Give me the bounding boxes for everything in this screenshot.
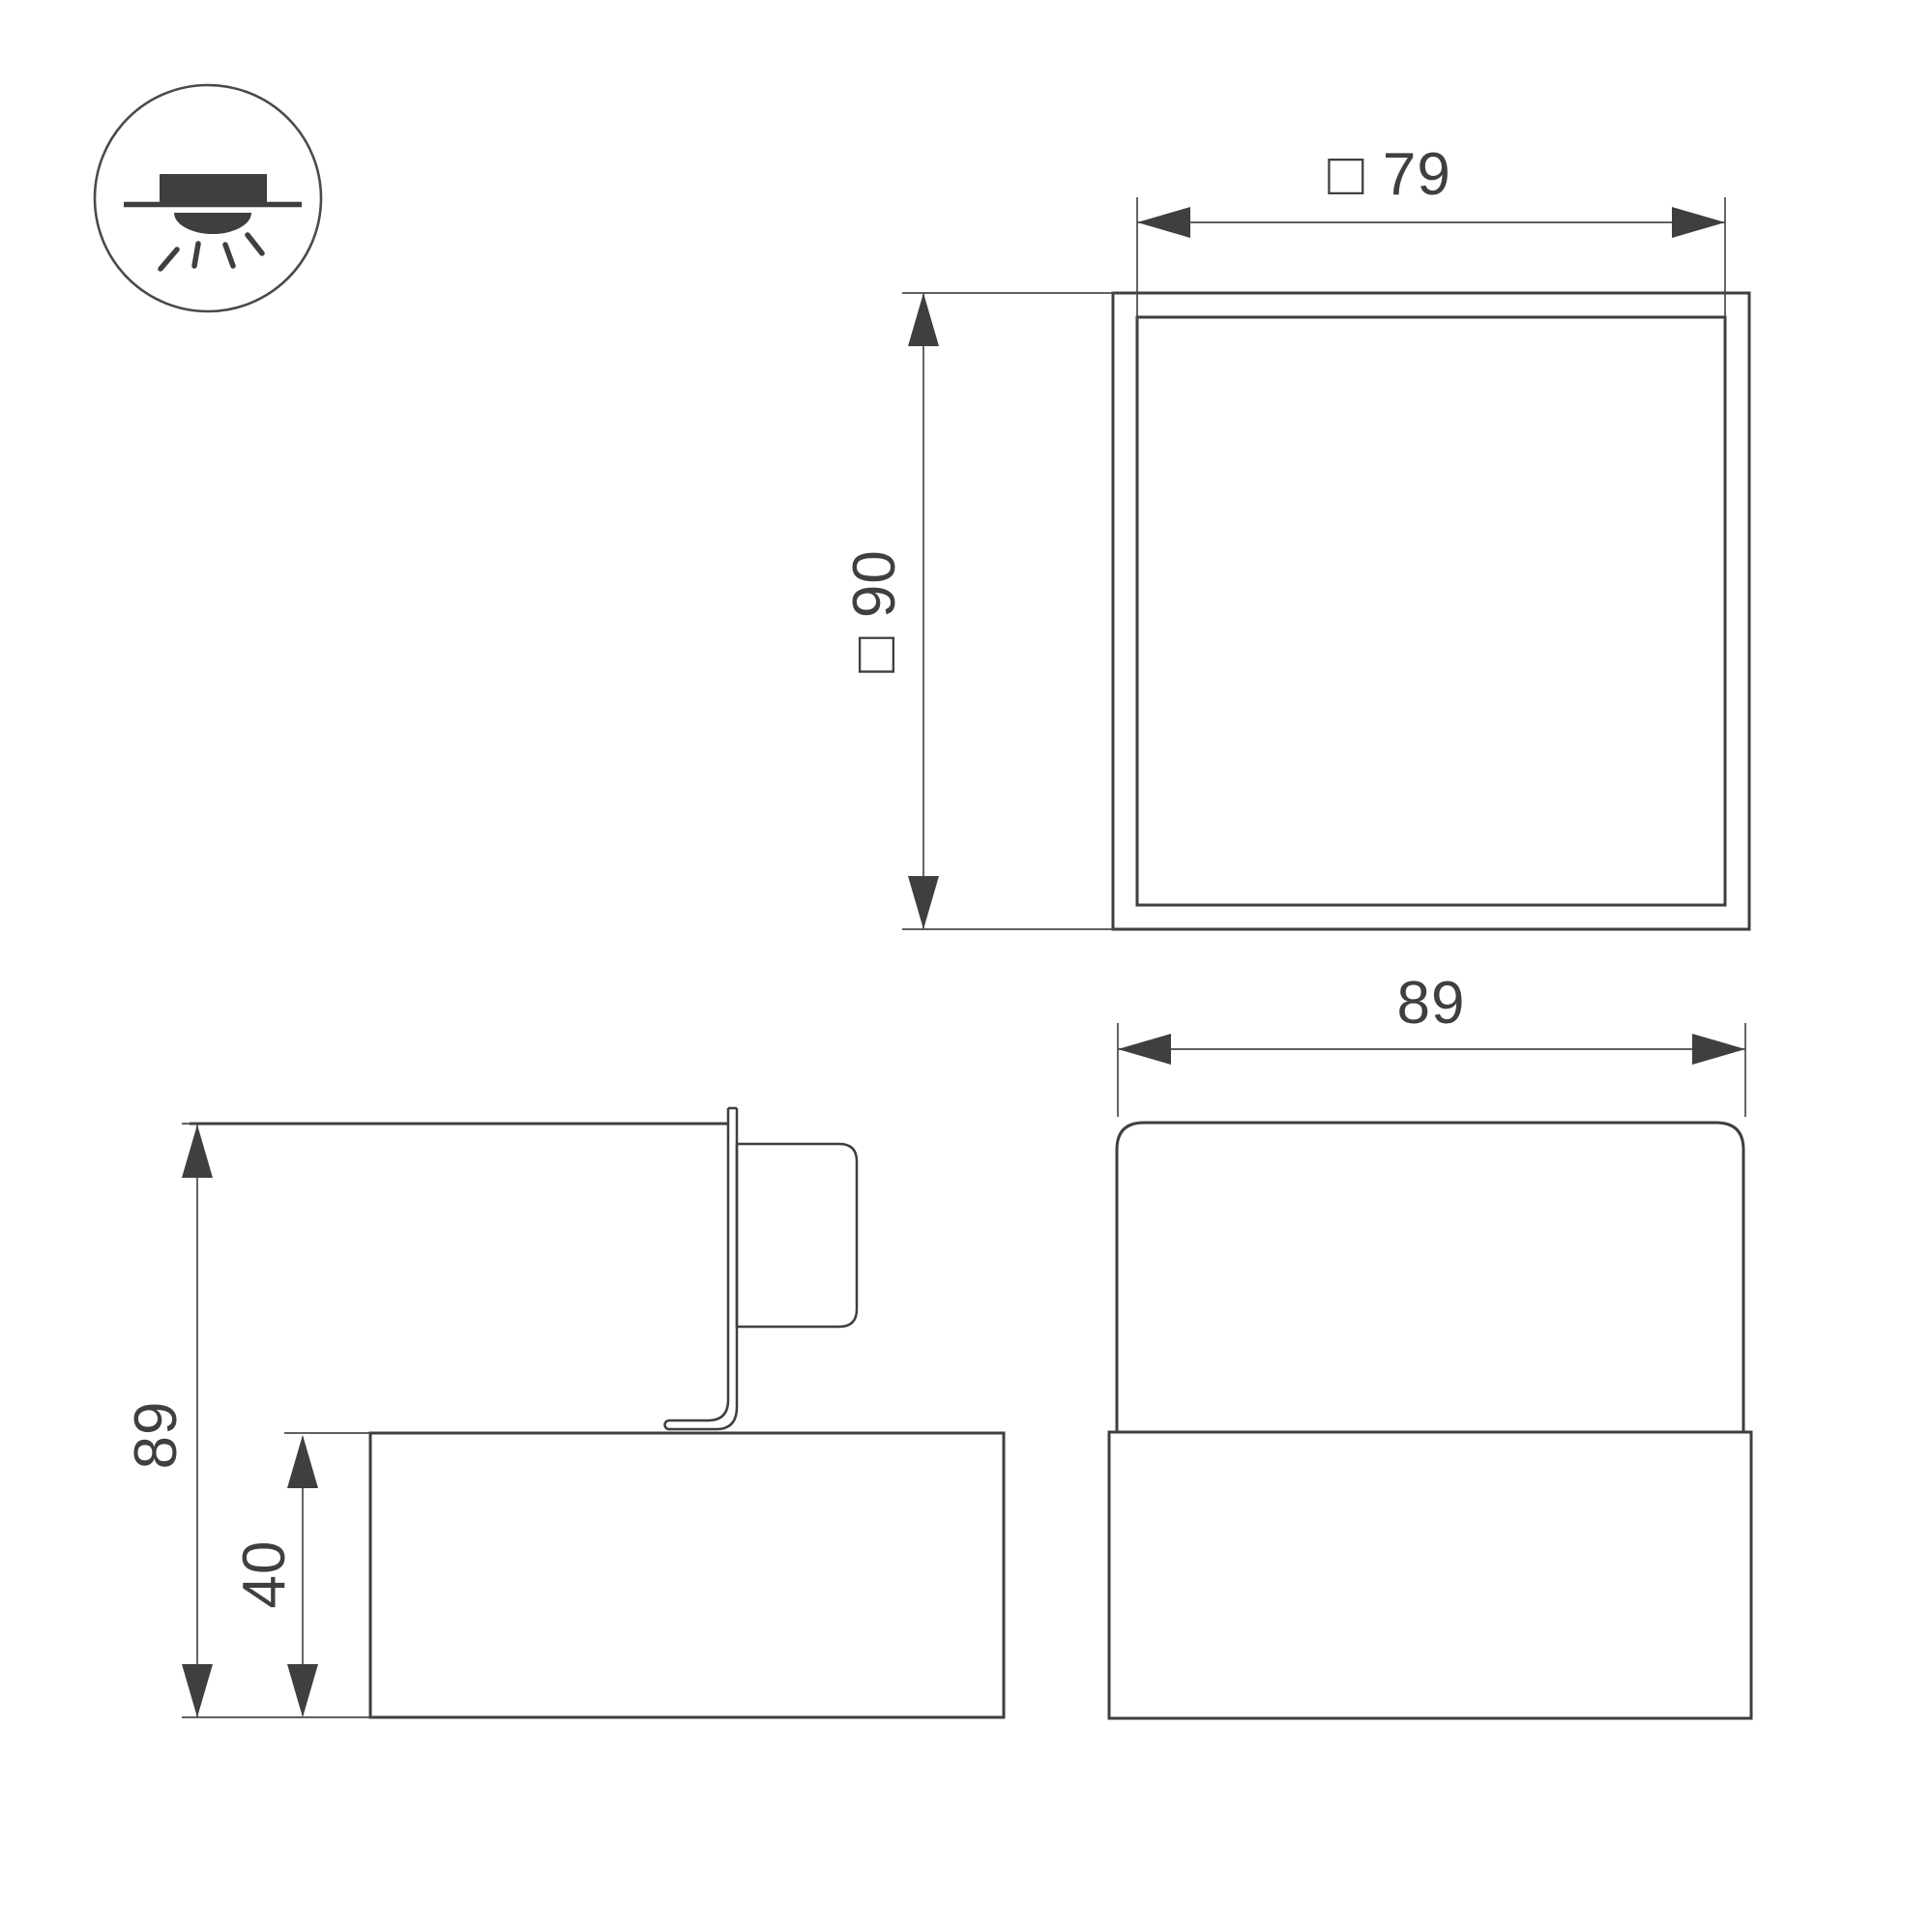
light-ray bbox=[161, 249, 177, 269]
top-view: □ 79 □ 90 bbox=[841, 141, 1749, 929]
dimension-label-79: □ 79 bbox=[1328, 141, 1451, 208]
dimension-label-89-width: 89 bbox=[1397, 970, 1466, 1037]
front-view-head bbox=[1117, 1123, 1743, 1432]
light-rays-icon bbox=[161, 235, 262, 269]
arrowhead-top bbox=[182, 1125, 213, 1178]
arrowhead-bottom bbox=[287, 1664, 318, 1717]
light-ray bbox=[248, 235, 262, 253]
arrowhead-right bbox=[1672, 207, 1725, 238]
front-view: 89 bbox=[1109, 970, 1751, 1718]
spring-clip bbox=[737, 1144, 857, 1327]
light-ray bbox=[194, 244, 198, 266]
light-ray bbox=[225, 245, 233, 266]
arrowhead-top bbox=[908, 293, 939, 346]
arrowhead-bottom bbox=[908, 876, 939, 929]
dimension-height-90: □ 90 bbox=[841, 293, 1115, 929]
dimension-label-90: □ 90 bbox=[841, 549, 908, 673]
mounting-plate bbox=[665, 1108, 857, 1429]
side-view: 89 40 bbox=[123, 1108, 1004, 1717]
front-view-base bbox=[1109, 1432, 1751, 1718]
technical-drawing-page: □ 79 □ 90 89 bbox=[0, 0, 1932, 1932]
arrowhead-top bbox=[287, 1435, 318, 1488]
dimension-label-40: 40 bbox=[231, 1540, 298, 1609]
plate-foot-upper bbox=[669, 1400, 728, 1420]
arrowhead-bottom bbox=[182, 1664, 213, 1717]
dimension-height-89: 89 bbox=[123, 1124, 372, 1717]
arrowhead-right bbox=[1692, 1034, 1745, 1065]
fixture-body-icon bbox=[160, 174, 267, 204]
mounting-type-icon bbox=[95, 85, 321, 311]
side-view-base bbox=[370, 1433, 1004, 1717]
light-dome-icon bbox=[174, 213, 251, 234]
dimension-label-89-height: 89 bbox=[123, 1401, 190, 1470]
luminaire-dimension-drawing: □ 79 □ 90 89 bbox=[0, 0, 1932, 1932]
dimension-base-height-40: 40 bbox=[231, 1435, 318, 1717]
arrowhead-left bbox=[1137, 207, 1190, 238]
arrowhead-left bbox=[1118, 1034, 1171, 1065]
plate-foot-cap bbox=[665, 1420, 669, 1429]
top-view-outer-square bbox=[1113, 293, 1749, 929]
dimension-width-89: 89 bbox=[1118, 970, 1745, 1117]
top-view-inner-square bbox=[1137, 317, 1725, 905]
